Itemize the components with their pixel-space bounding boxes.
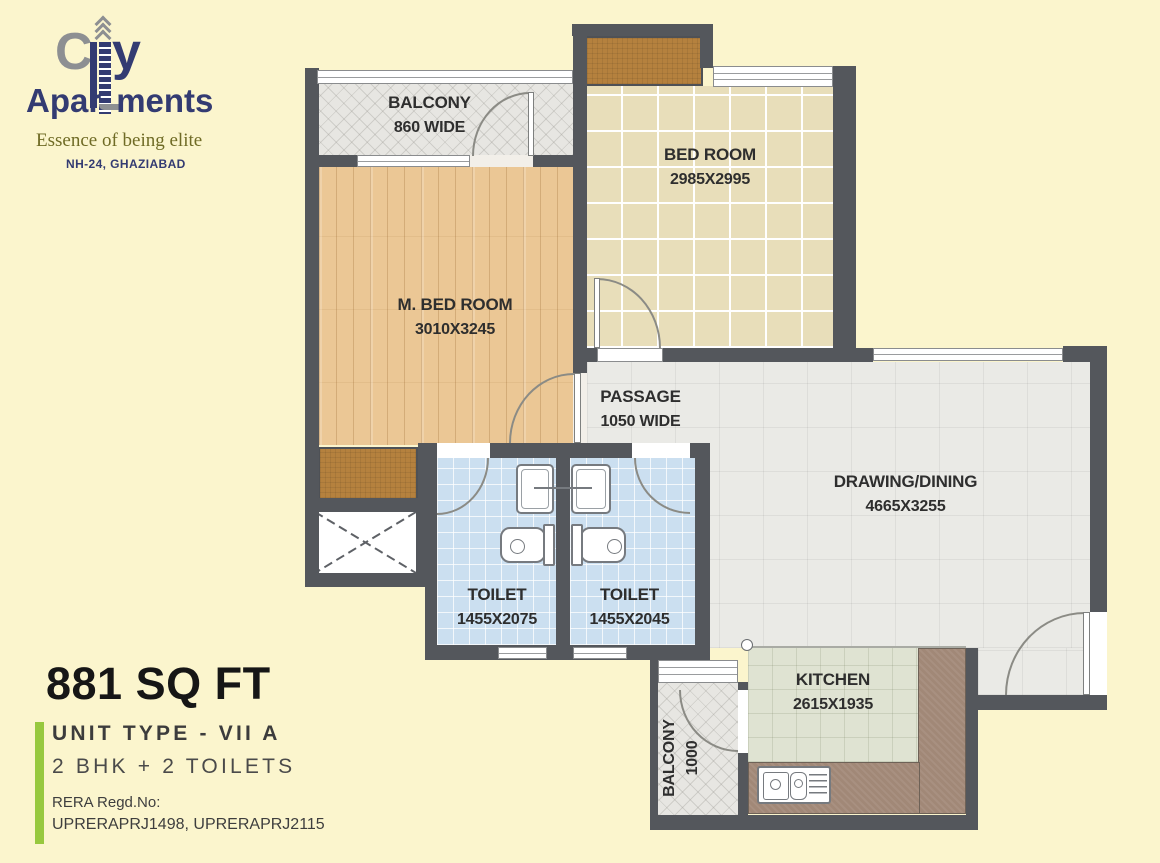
wall <box>425 645 710 660</box>
brand-tagline: Essence of being elite <box>36 130 202 152</box>
doorway-toilet-2 <box>632 443 690 458</box>
room-dimension: 1455X2045 <box>567 608 692 631</box>
room-name: PASSAGE <box>578 385 703 410</box>
door-leaf-bedroom <box>594 278 600 348</box>
wardrobe-master-bedroom <box>318 447 418 500</box>
room-label-drawing-dining: DRAWING/DINING 4665X3255 <box>788 470 1023 518</box>
room-name: KITCHEN <box>748 668 918 693</box>
brand-logo: C y Aparments Essence of being elite NH-… <box>0 0 260 180</box>
wall <box>418 443 437 587</box>
logo-apartments: Aparments <box>26 82 213 120</box>
window-drawing-dining <box>873 348 1063 361</box>
wall <box>587 443 632 458</box>
room-name: TOILET <box>437 583 557 608</box>
room-label-kitchen: KITCHEN 2615X1935 <box>748 668 918 716</box>
room-name: M. BED ROOM <box>335 293 575 318</box>
unit-type: UNIT TYPE - VII A <box>52 722 281 746</box>
unit-configuration: 2 BHK + 2 TOILETS <box>52 755 295 779</box>
shaft-cross-icon <box>315 512 416 573</box>
kitchen-sink-icon <box>757 766 831 804</box>
floor-plan-poster: C y Aparments Essence of being elite NH-… <box>0 0 1160 863</box>
doorway-main-entrance <box>1090 612 1107 695</box>
faucet-line <box>552 487 592 489</box>
room-dimension: 1000 <box>681 693 704 823</box>
room-label-passage: PASSAGE 1050 WIDE <box>578 385 703 433</box>
room-name: BALCONY <box>322 91 537 116</box>
door-leaf-main-entrance <box>1083 612 1090 695</box>
room-dimension: 2615X1935 <box>748 693 918 716</box>
column-marker-icon <box>741 639 753 651</box>
doorway-toilet-1 <box>437 443 490 458</box>
window-balcony-top <box>317 70 573 84</box>
room-dimension: 1455X2075 <box>437 608 557 631</box>
brand-location: NH-24, GHAZIABAD <box>66 157 186 171</box>
wall <box>833 66 856 362</box>
window-toilet-1 <box>498 647 547 659</box>
kitchen-boundary-line <box>748 646 966 648</box>
wall <box>533 155 575 167</box>
wall <box>695 443 710 660</box>
wall <box>1090 346 1107 612</box>
toilet-tank-icon <box>571 524 583 566</box>
window-bedroom <box>713 66 833 87</box>
wall <box>650 660 658 815</box>
room-label-master-bedroom: M. BED ROOM 3010X3245 <box>335 293 575 341</box>
wall <box>966 648 978 822</box>
doorway-balcony-kitchen <box>738 690 748 753</box>
wall <box>425 587 437 660</box>
logo-letter-y: y <box>112 22 141 82</box>
kitchen-counter <box>918 648 966 814</box>
wall <box>700 24 713 68</box>
room-name: DRAWING/DINING <box>788 470 1023 495</box>
toilet-wc-icon <box>580 527 626 563</box>
doorway-bedroom <box>597 348 663 362</box>
room-label-balcony-kitchen: BALCONY 1000 <box>658 693 718 823</box>
room-label-toilet-2: TOILET 1455X2045 <box>567 583 692 631</box>
toilet-wc-icon <box>500 527 546 563</box>
logo-letter-c: C <box>55 22 93 82</box>
wall <box>572 24 712 36</box>
wall <box>573 24 587 373</box>
window-toilet-2 <box>573 647 627 659</box>
sink-icon <box>516 464 554 514</box>
unit-area: 881 SQ FT <box>46 658 271 710</box>
wall <box>305 155 357 167</box>
room-dimension: 4665X3255 <box>788 495 1023 518</box>
service-shaft <box>313 510 418 575</box>
room-dimension: 2985X2995 <box>590 168 830 191</box>
room-dimension: 3010X3245 <box>335 318 575 341</box>
doorway-balcony <box>470 155 533 167</box>
room-name: BALCONY <box>658 693 681 823</box>
window-balcony-kitchen <box>658 660 738 683</box>
rera-label: RERA Regd.No: <box>52 794 160 811</box>
room-dimension: 860 WIDE <box>322 116 537 139</box>
wall <box>305 575 418 587</box>
accent-bar <box>35 722 44 844</box>
wall <box>975 695 1107 710</box>
room-label-toilet-1: TOILET 1455X2075 <box>437 583 557 631</box>
wall <box>305 498 418 510</box>
toilet-tank-icon <box>543 524 555 566</box>
wardrobe-bedroom <box>585 36 703 86</box>
room-name: BED ROOM <box>590 143 830 168</box>
room-name: TOILET <box>567 583 692 608</box>
sink-icon <box>571 464 611 514</box>
window-balcony-sill <box>357 155 470 167</box>
room-label-bedroom: BED ROOM 2985X2995 <box>590 143 830 191</box>
room-dimension: 1050 WIDE <box>578 410 703 433</box>
rera-numbers: UPRERAPRJ1498, UPRERAPRJ2115 <box>52 816 325 834</box>
room-label-balcony-top: BALCONY 860 WIDE <box>322 91 537 139</box>
